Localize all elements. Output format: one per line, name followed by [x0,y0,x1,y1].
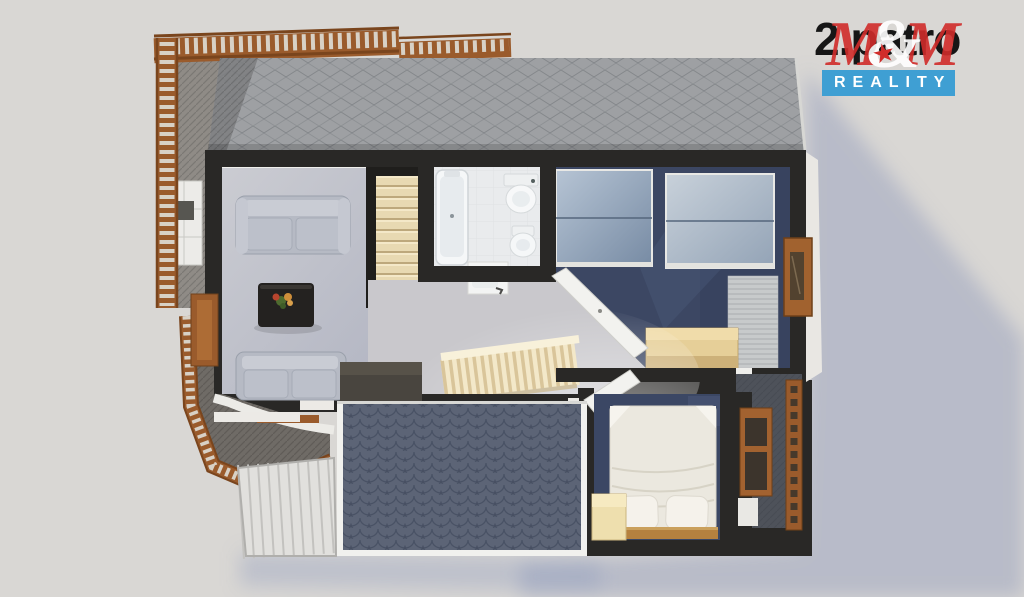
skylight-window-left [556,170,652,267]
floorplan-3d-render: 2.patro M&M ★ REALITY [0,0,1024,597]
bathtub [436,170,468,265]
sofa-top [236,196,350,254]
bathroom [434,166,540,268]
main-roof [208,58,805,152]
balcony-white-patch [738,498,758,526]
logo-area: 2.patro M&M ★ REALITY [810,8,1010,98]
exterior-stairs [238,458,336,556]
coffee-table [254,283,322,334]
balcony-railing-right [786,380,802,530]
porch-roof [337,401,587,556]
toilet [504,174,538,213]
sofa-bottom [236,352,346,400]
bidet [510,226,536,257]
pergola-railing-left [156,38,178,308]
lower-left-wall-trim [214,412,300,422]
bedroom-lower [592,394,720,540]
balcony-shelf [740,408,772,496]
nightstand [592,494,626,540]
dark-cabinet [340,362,422,402]
skylight-window-right [666,174,774,268]
brand-banner: REALITY [822,70,955,96]
dormer-window [784,238,812,316]
